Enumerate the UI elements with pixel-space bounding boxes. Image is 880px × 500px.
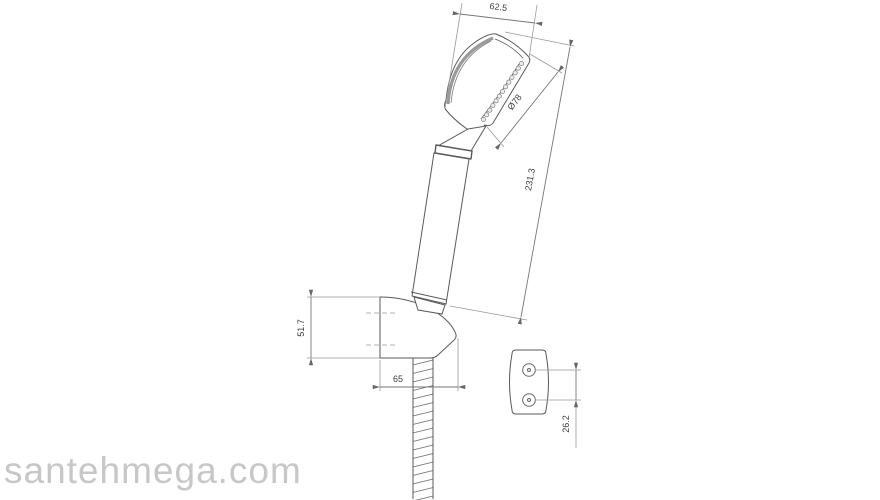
dim-label-hole-spacing: 26.2 — [561, 415, 571, 433]
wall-plate — [510, 350, 549, 414]
ext-line-231-top — [505, 32, 574, 46]
screw-hole-bottom — [523, 394, 536, 407]
screw-hole-top — [523, 364, 536, 377]
dim-label-holder-height: 51.7 — [296, 319, 306, 337]
dim-line-head-width — [460, 14, 535, 23]
dim-label-holder-depth: 65 — [393, 374, 403, 384]
watermark-text: santehmega.com — [4, 452, 302, 489]
ext-line-78-top — [530, 54, 562, 73]
hand-shower-drawing: 62.5 Ø78 231.3 51.7 65 26.2 — [0, 0, 880, 500]
ext-line-78-bottom — [487, 127, 504, 147]
shower-hose — [413, 358, 433, 500]
dim-label-overall-length: 231.3 — [523, 168, 537, 192]
dim-label-head-width: 62.5 — [489, 1, 508, 13]
ext-line-62-right — [529, 5, 537, 58]
shower-head — [445, 34, 530, 131]
hand-shower-set — [380, 34, 549, 500]
shower-handle — [412, 153, 469, 304]
ext-line-231-bottom — [450, 306, 527, 320]
technical-drawing-page: 62.5 Ø78 231.3 51.7 65 26.2 santehmega.c… — [0, 0, 880, 500]
